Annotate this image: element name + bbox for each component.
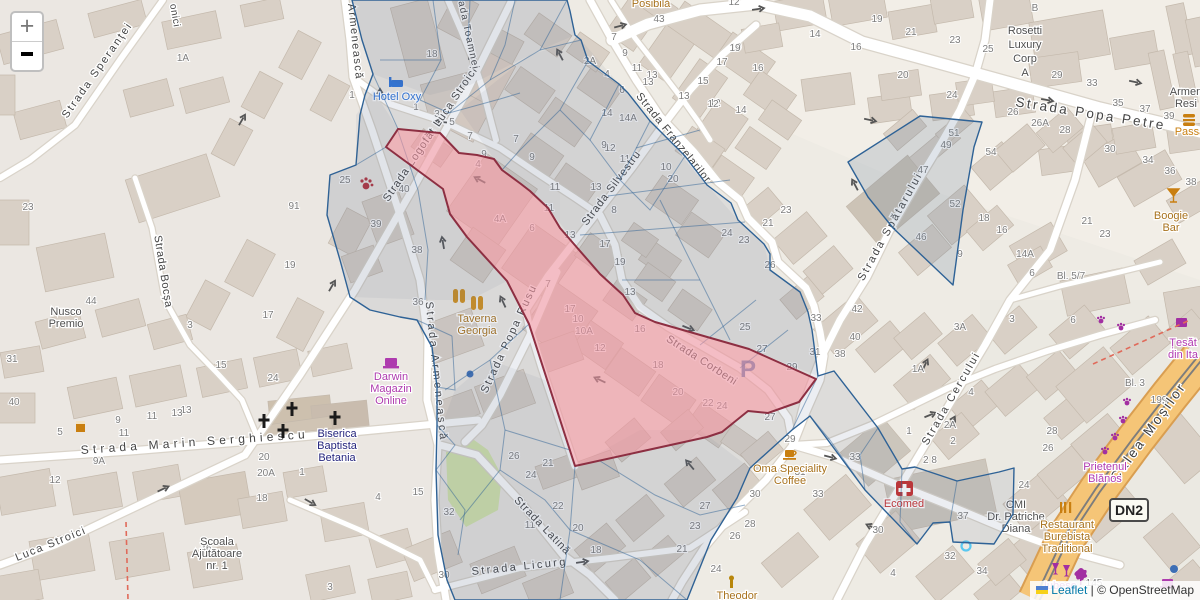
svg-text:Burebista: Burebista	[1044, 531, 1091, 543]
svg-text:Prietenul: Prietenul	[1083, 461, 1126, 473]
svg-text:28: 28	[1059, 125, 1071, 136]
svg-text:23: 23	[22, 202, 34, 213]
svg-text:Premio: Premio	[49, 318, 84, 330]
svg-text:Passa: Passa	[1175, 126, 1200, 138]
svg-text:A: A	[1021, 67, 1029, 79]
svg-text:Betania: Betania	[318, 452, 356, 464]
svg-text:Restaurant: Restaurant	[1040, 519, 1094, 531]
svg-text:44: 44	[85, 296, 97, 307]
svg-text:13: 13	[171, 408, 183, 419]
svg-text:54: 54	[985, 147, 997, 158]
svg-text:33: 33	[1086, 78, 1098, 89]
svg-text:21: 21	[1081, 216, 1093, 227]
svg-text:Resi: Resi	[1175, 98, 1197, 110]
svg-text:11: 11	[632, 63, 643, 74]
svg-text:29: 29	[1051, 70, 1063, 81]
svg-text:6: 6	[1029, 268, 1035, 279]
svg-text:21: 21	[905, 27, 917, 38]
svg-text:Ajutătoare: Ajutătoare	[192, 548, 242, 560]
svg-text:21: 21	[762, 218, 774, 229]
svg-text:17: 17	[716, 57, 728, 68]
svg-text:24: 24	[1018, 480, 1030, 491]
svg-text:23: 23	[949, 35, 961, 46]
svg-text:14: 14	[735, 105, 747, 116]
svg-text:12: 12	[49, 475, 61, 486]
svg-text:Boogie: Boogie	[1154, 210, 1188, 222]
svg-text:20: 20	[897, 70, 909, 81]
svg-text:Corp: Corp	[1013, 53, 1037, 65]
svg-text:1: 1	[906, 426, 912, 437]
svg-text:4: 4	[968, 387, 974, 398]
svg-text:33: 33	[810, 313, 822, 324]
svg-text:24: 24	[710, 564, 722, 575]
svg-text:B: B	[1032, 3, 1039, 14]
svg-text:34: 34	[1142, 155, 1154, 166]
svg-text:2A: 2A	[944, 420, 957, 431]
svg-text:30: 30	[1104, 144, 1116, 155]
svg-text:36: 36	[1164, 166, 1176, 177]
svg-text:Magazin: Magazin	[370, 383, 412, 395]
svg-text:3: 3	[187, 320, 193, 331]
svg-text:11: 11	[119, 428, 130, 439]
svg-text:15: 15	[697, 76, 709, 87]
svg-text:Armen: Armen	[1170, 86, 1200, 98]
svg-text:28: 28	[1046, 426, 1058, 437]
svg-text:5: 5	[57, 427, 63, 438]
svg-text:Traditional: Traditional	[1042, 543, 1093, 555]
svg-text:Posibilă: Posibilă	[632, 0, 671, 10]
svg-text:30: 30	[872, 525, 884, 536]
svg-text:43: 43	[653, 14, 665, 25]
svg-text:11: 11	[147, 411, 158, 422]
svg-text:Bl. 3: Bl. 3	[1125, 378, 1145, 389]
svg-text:1A: 1A	[177, 53, 190, 64]
svg-text:15: 15	[215, 360, 227, 371]
svg-text:91: 91	[288, 201, 300, 212]
svg-text:19: 19	[284, 260, 296, 271]
svg-text:1: 1	[349, 90, 355, 101]
svg-text:Darwin: Darwin	[374, 371, 408, 383]
svg-text:23: 23	[1099, 229, 1111, 240]
svg-text:24: 24	[267, 373, 279, 384]
svg-text:24: 24	[946, 90, 958, 101]
svg-text:20: 20	[258, 452, 270, 463]
svg-text:18: 18	[978, 213, 990, 224]
svg-text:30: 30	[749, 489, 761, 500]
svg-text:25: 25	[982, 44, 994, 55]
svg-text:Rosetti: Rosetti	[1008, 25, 1042, 37]
svg-text:9A: 9A	[93, 456, 106, 467]
svg-text:12: 12	[728, 0, 740, 8]
svg-text:16: 16	[996, 225, 1008, 236]
svg-text:40: 40	[8, 397, 20, 408]
svg-text:20A: 20A	[257, 468, 275, 479]
svg-text:3A: 3A	[954, 322, 967, 333]
svg-text:Bl. 5/7: Bl. 5/7	[1057, 271, 1086, 282]
svg-text:32: 32	[944, 551, 956, 562]
svg-text:1A: 1A	[912, 364, 925, 375]
svg-text:Luxury: Luxury	[1008, 39, 1042, 51]
svg-text:DN2: DN2	[1115, 502, 1143, 518]
svg-text:4: 4	[890, 568, 896, 579]
svg-text:19: 19	[729, 43, 741, 54]
svg-text:31: 31	[6, 354, 18, 365]
svg-text:din Ita: din Ita	[1168, 349, 1199, 361]
svg-text:13: 13	[642, 77, 654, 88]
svg-text:26A: 26A	[1031, 118, 1049, 129]
svg-text:3: 3	[1009, 314, 1015, 325]
svg-text:28: 28	[744, 519, 756, 530]
svg-text:13: 13	[678, 91, 690, 102]
svg-text:14: 14	[809, 29, 821, 40]
svg-text:40: 40	[849, 332, 861, 343]
svg-text:35: 35	[1112, 98, 1124, 109]
svg-text:nr. 1: nr. 1	[206, 560, 227, 572]
svg-text:3: 3	[327, 582, 333, 593]
svg-text:9: 9	[115, 415, 121, 426]
svg-text:Coffee: Coffee	[774, 475, 806, 487]
svg-text:Online: Online	[375, 395, 407, 407]
svg-text:18: 18	[256, 493, 268, 504]
svg-text:7: 7	[611, 32, 617, 43]
svg-text:26: 26	[1042, 443, 1054, 454]
svg-text:15: 15	[412, 487, 424, 498]
svg-text:33: 33	[812, 489, 824, 500]
svg-text:16: 16	[752, 63, 764, 74]
svg-text:Școala: Școala	[200, 536, 235, 548]
svg-text:23: 23	[780, 205, 792, 216]
svg-text:Bar: Bar	[1162, 222, 1179, 234]
svg-text:42: 42	[851, 304, 863, 315]
svg-text:Oma Speciality: Oma Speciality	[753, 463, 827, 475]
svg-text:1: 1	[299, 467, 305, 478]
svg-text:34: 34	[976, 566, 988, 577]
svg-text:26: 26	[729, 531, 741, 542]
svg-text:Nusco: Nusco	[50, 306, 81, 318]
svg-text:4: 4	[375, 492, 381, 503]
svg-text:Țesăt: Țesăt	[1169, 337, 1197, 349]
svg-text:6: 6	[1070, 315, 1076, 326]
svg-text:14A: 14A	[1016, 249, 1034, 260]
svg-text:Biserica: Biserica	[317, 428, 357, 440]
svg-text:38: 38	[1185, 177, 1197, 188]
svg-text:Theodor: Theodor	[717, 590, 758, 600]
svg-text:12: 12	[707, 99, 719, 110]
svg-text:Blănos: Blănos	[1088, 473, 1122, 485]
svg-text:19: 19	[871, 14, 883, 25]
svg-text:38: 38	[834, 349, 846, 360]
svg-text:9: 9	[622, 48, 628, 59]
svg-text:2 8: 2 8	[923, 455, 937, 466]
svg-text:Baptista: Baptista	[317, 440, 358, 452]
svg-text:16: 16	[850, 42, 862, 53]
svg-text:2: 2	[950, 436, 956, 447]
svg-text:17: 17	[262, 310, 274, 321]
